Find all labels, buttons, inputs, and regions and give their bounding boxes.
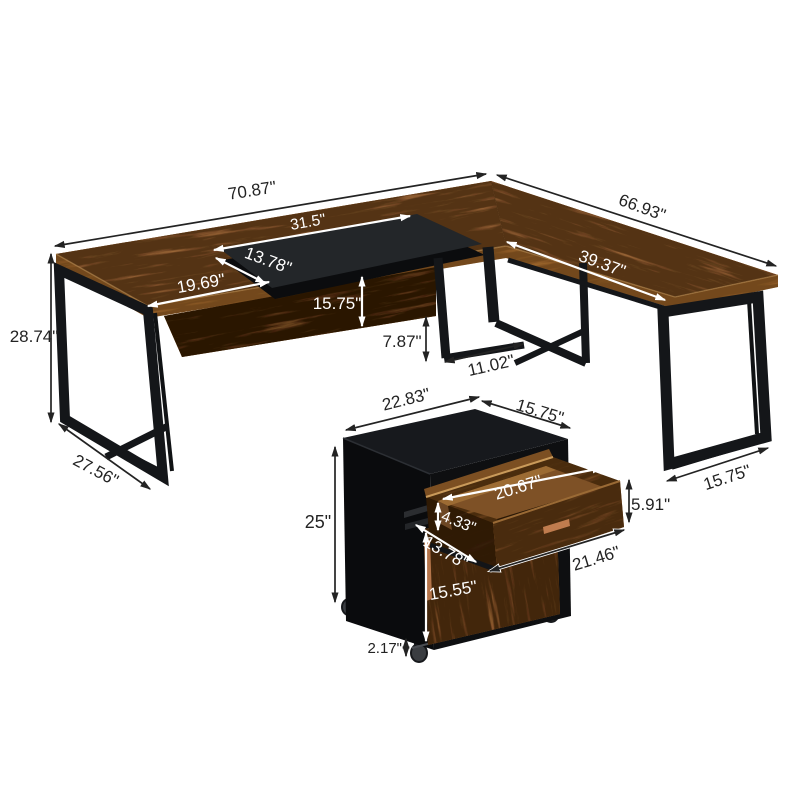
svg-text:2.17": 2.17" <box>367 640 402 657</box>
svg-text:7.87": 7.87" <box>382 332 421 351</box>
svg-text:25": 25" <box>305 512 331 532</box>
svg-text:5.91": 5.91" <box>631 495 670 514</box>
svg-text:15.75": 15.75" <box>313 294 362 313</box>
svg-text:28.74": 28.74" <box>10 327 59 346</box>
